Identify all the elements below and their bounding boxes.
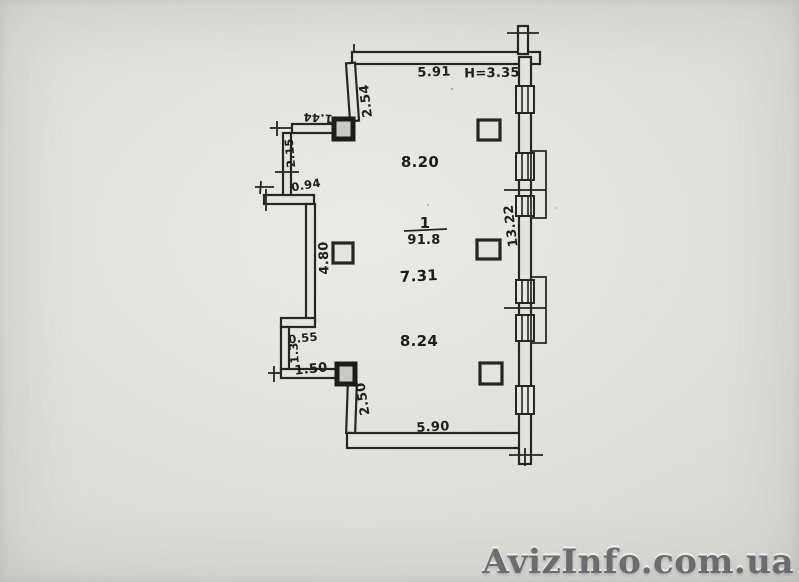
scan-speck	[427, 204, 429, 206]
dimension-ticks	[255, 33, 546, 466]
dim-width-lower: 8.24	[400, 332, 438, 350]
watermark-avizinfo: AvizInfo.com.ua	[482, 542, 794, 582]
column-west	[333, 243, 353, 263]
scan-speck	[451, 88, 453, 90]
column-southwest	[337, 364, 355, 384]
wall-west-jog	[281, 318, 315, 327]
dim-jog-side: 1.3	[286, 342, 301, 364]
dim-niche-top: 1.44	[303, 110, 333, 126]
wall-north	[352, 52, 540, 64]
tick-niche-bottom	[260, 181, 261, 194]
column-east-2	[477, 240, 500, 259]
scanned-paper-background: 5.91 H=3.35 2.54 1.44 2.15 0.94 4.80 0.5…	[0, 0, 799, 582]
room-number: 1	[420, 214, 431, 232]
dim-ceiling-height: H=3.35	[464, 66, 520, 82]
window-symbol	[516, 86, 534, 113]
room-area: 91.8	[407, 233, 440, 248]
dim-west-wall: 4.80	[316, 241, 332, 275]
dim-nw-wall: 2.54	[357, 84, 376, 119]
column-east-1	[478, 120, 500, 140]
wall-south	[347, 433, 527, 448]
wall-niche-bottom	[264, 195, 314, 204]
dim-width-upper: 8.20	[401, 153, 439, 171]
dim-width-middle: 7.31	[399, 266, 438, 286]
window-symbol	[516, 386, 534, 414]
wall-west	[306, 204, 315, 322]
dim-bottom-width: 5.90	[416, 419, 450, 436]
dim-niche-side: 2.15	[282, 138, 299, 169]
dim-top-width: 5.91	[417, 64, 451, 80]
floor-plan-drawing: 5.91 H=3.35 2.54 1.44 2.15 0.94 4.80 0.5…	[0, 0, 799, 582]
wall-north-stub	[518, 26, 528, 54]
dim-niche-bottom: 0.94	[290, 176, 322, 195]
column-east-3	[480, 363, 502, 384]
scan-speck	[555, 207, 557, 209]
column-northwest	[334, 119, 353, 139]
